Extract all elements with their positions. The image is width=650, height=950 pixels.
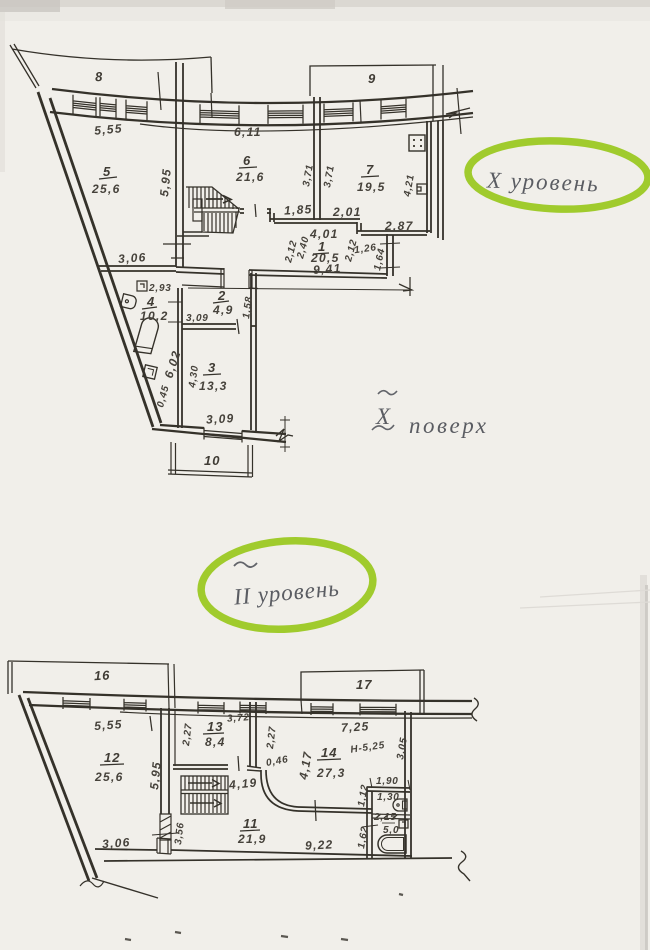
svg-text:5: 5 bbox=[103, 164, 111, 179]
svg-text:X: X bbox=[375, 404, 391, 429]
svg-text:3,72: 3,72 bbox=[227, 712, 250, 725]
svg-text:8,4: 8,4 bbox=[205, 735, 226, 749]
svg-text:25,6: 25,6 bbox=[91, 182, 121, 196]
svg-text:13,3: 13,3 bbox=[199, 379, 228, 393]
svg-text:2,01: 2,01 bbox=[332, 205, 362, 219]
svg-text:2,15: 2,15 bbox=[373, 812, 397, 823]
svg-text:5,95: 5,95 bbox=[147, 760, 164, 790]
svg-text:1,90: 1,90 bbox=[376, 776, 399, 787]
svg-text:3,06: 3,06 bbox=[118, 250, 147, 266]
svg-text:4,9: 4,9 bbox=[212, 303, 234, 317]
svg-text:19,5: 19,5 bbox=[357, 180, 386, 194]
svg-text:25,6: 25,6 bbox=[94, 770, 124, 784]
svg-text:6,11: 6,11 bbox=[234, 125, 262, 139]
svg-text:27,3: 27,3 bbox=[316, 766, 346, 780]
svg-text:10: 10 bbox=[204, 453, 220, 468]
svg-text:1,85: 1,85 bbox=[284, 202, 313, 217]
svg-text:5,0: 5,0 bbox=[383, 825, 399, 836]
svg-text:10,2: 10,2 bbox=[140, 309, 169, 323]
svg-text:5,55: 5,55 bbox=[94, 717, 123, 733]
svg-text:21,9: 21,9 bbox=[237, 832, 267, 846]
svg-text:16: 16 bbox=[94, 667, 111, 683]
svg-text:14: 14 bbox=[321, 745, 337, 760]
svg-text:11: 11 bbox=[243, 816, 259, 831]
svg-text:12: 12 bbox=[104, 750, 120, 765]
svg-text:17: 17 bbox=[356, 677, 372, 692]
svg-text:4,19: 4,19 bbox=[227, 775, 258, 792]
svg-text:8: 8 bbox=[95, 69, 104, 85]
svg-text:3,09: 3,09 bbox=[206, 411, 235, 426]
svg-text:9,41: 9,41 bbox=[313, 261, 342, 277]
svg-text:X уровень: X уровень bbox=[486, 167, 601, 196]
svg-text:5,55: 5,55 bbox=[94, 121, 124, 137]
svg-text:6: 6 bbox=[243, 153, 251, 168]
svg-text:5,95: 5,95 bbox=[157, 167, 174, 197]
svg-text:21,6: 21,6 bbox=[235, 170, 265, 184]
svg-text:3: 3 bbox=[208, 360, 216, 375]
svg-text:9,22: 9,22 bbox=[305, 837, 334, 852]
svg-text:1,30: 1,30 bbox=[377, 792, 400, 803]
svg-text:2,87: 2,87 bbox=[384, 219, 414, 233]
svg-text:поверх: поверх bbox=[409, 413, 488, 438]
svg-text:4: 4 bbox=[146, 294, 155, 309]
svg-text:2,93: 2,93 bbox=[148, 283, 172, 294]
svg-text:7: 7 bbox=[366, 162, 374, 177]
svg-text:7,25: 7,25 bbox=[341, 719, 370, 734]
svg-text:13: 13 bbox=[207, 719, 223, 734]
svg-text:3,06: 3,06 bbox=[102, 835, 131, 851]
svg-text:3,09: 3,09 bbox=[186, 313, 209, 324]
svg-text:2: 2 bbox=[217, 288, 226, 303]
svg-text:9: 9 bbox=[368, 71, 376, 86]
